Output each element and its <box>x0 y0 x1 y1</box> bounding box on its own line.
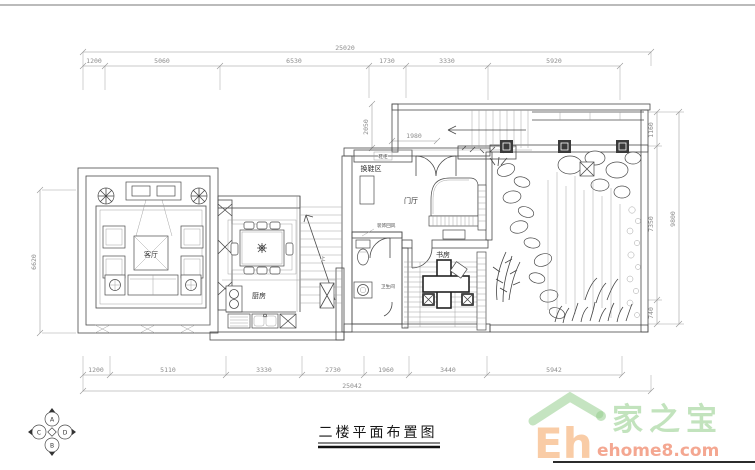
double-door <box>416 156 456 176</box>
watermark-logo: Eh 家之宝 ehome8.com <box>533 397 723 468</box>
dim-top-overall: 25020 <box>335 44 355 52</box>
living-room-group: 客厅 <box>95 182 210 333</box>
garden-group <box>490 140 641 323</box>
grand-piano <box>429 178 480 239</box>
logo-domain: ehome8.com <box>597 441 719 461</box>
room-label-kitchen: 厨房 <box>252 291 266 300</box>
compass-c: C <box>37 430 41 437</box>
room-label-study: 书房 <box>436 250 450 259</box>
dim-left-overall: 6620 <box>30 254 38 270</box>
compass-rose: A B C D <box>28 408 76 456</box>
pebbles <box>627 207 641 318</box>
dim-top-seg: 1200 <box>86 57 102 65</box>
dim-right-overall: 9800 <box>669 211 677 227</box>
dim-top-seg: 3330 <box>439 57 455 65</box>
bathroom-group: 卫生间 <box>354 238 395 316</box>
rocks <box>558 151 641 198</box>
room-label-shoe-area: 换鞋区 <box>361 164 382 173</box>
dimension-right: 1160 7350 740 9800 <box>647 109 684 327</box>
walls <box>78 104 650 340</box>
room-label-living: 客厅 <box>144 250 158 259</box>
dim-bottom-seg: 3330 <box>256 366 272 374</box>
column <box>558 140 571 153</box>
column <box>500 140 513 153</box>
study-door <box>412 248 432 268</box>
dim-bottom-seg: 2730 <box>325 366 341 374</box>
dim-stair-width: 1980 <box>406 132 422 140</box>
dimension-top: 25020 1200 5060 6530 1730 3330 5920 <box>80 44 654 100</box>
stair-up-label: 上 <box>321 255 326 262</box>
screen-note-label: 装饰回风 <box>377 222 396 229</box>
stepping-stones <box>495 161 566 320</box>
logo-brand: 家之宝 <box>612 402 723 438</box>
dimension-stair: 2050 1980 <box>362 101 440 151</box>
floor-plan-canvas: 25020 1200 5060 6530 1730 3330 5920 1200… <box>0 0 755 470</box>
dimension-bottom: 1200 5110 3330 2730 1960 3440 5942 25042 <box>80 356 654 394</box>
cad-sheet: 25020 1200 5060 6530 1730 3330 5920 1200… <box>0 0 755 470</box>
dim-bottom-seg: 1960 <box>378 366 394 374</box>
dim-top-seg: 5060 <box>154 57 170 65</box>
plants <box>490 157 632 323</box>
dim-top-seg: 1730 <box>379 57 395 65</box>
bathroom-door <box>370 238 390 258</box>
shoe-cabinet-label: 鞋柜 <box>378 153 388 160</box>
title-block: 二楼平面布置图 <box>318 425 440 447</box>
dim-bottom-overall: 25042 <box>342 382 362 390</box>
bench <box>360 176 374 204</box>
compass-d: D <box>63 430 68 437</box>
dim-top-seg: 5920 <box>546 57 562 65</box>
dimension-left: 6620 <box>30 187 76 336</box>
dim-bottom-seg: 5110 <box>160 366 176 374</box>
column <box>616 140 629 153</box>
dim-bottom-seg: 5942 <box>546 366 562 374</box>
house-roof-icon <box>533 397 599 421</box>
bookshelf <box>477 252 486 330</box>
page-title: 二楼平面布置图 <box>319 425 438 441</box>
room-label-bathroom: 卫生间 <box>381 283 395 290</box>
dim-bottom-seg: 1200 <box>88 366 104 374</box>
dim-top-seg: 6530 <box>286 57 302 65</box>
compass-b: B <box>50 443 54 450</box>
room-label-foyer: 门厅 <box>404 196 418 205</box>
dim-bottom-seg: 3440 <box>440 366 456 374</box>
toilet <box>356 240 370 248</box>
dim-stair-height: 2050 <box>362 119 370 135</box>
logo-eh: Eh <box>534 419 593 468</box>
dining-group <box>228 220 296 274</box>
